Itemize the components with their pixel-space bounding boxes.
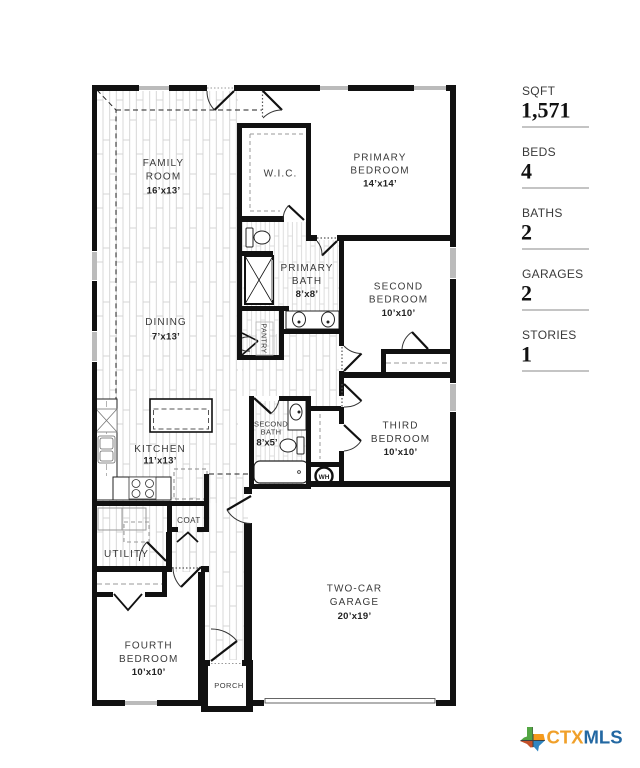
svg-text:WH: WH xyxy=(319,474,330,481)
svg-text:BATH: BATH xyxy=(292,276,322,287)
svg-text:10’x10’: 10’x10’ xyxy=(382,308,416,319)
svg-text:UTILITY: UTILITY xyxy=(104,549,149,560)
svg-text:2: 2 xyxy=(521,220,532,245)
svg-text:TWO-CAR: TWO-CAR xyxy=(327,584,382,595)
svg-text:SECOND: SECOND xyxy=(374,282,423,293)
svg-text:COAT: COAT xyxy=(177,516,201,525)
svg-text:8’x8’: 8’x8’ xyxy=(296,289,319,300)
svg-text:7’x13’: 7’x13’ xyxy=(152,332,180,343)
svg-text:BATH: BATH xyxy=(261,428,282,437)
svg-text:8’x5’: 8’x5’ xyxy=(256,438,277,449)
svg-text:DINING: DINING xyxy=(145,317,187,328)
svg-text:FOURTH: FOURTH xyxy=(125,641,173,652)
svg-text:THIRD: THIRD xyxy=(382,421,418,432)
svg-text:CTXMLS: CTXMLS xyxy=(547,727,623,748)
svg-text:BEDS: BEDS xyxy=(522,145,556,159)
svg-text:BEDROOM: BEDROOM xyxy=(371,434,430,445)
svg-text:20’x19’: 20’x19’ xyxy=(338,611,372,622)
svg-text:PANTRY: PANTRY xyxy=(260,323,267,353)
svg-text:1,571: 1,571 xyxy=(521,98,571,123)
svg-text:11’x13’: 11’x13’ xyxy=(143,456,176,467)
svg-text:W.I.C.: W.I.C. xyxy=(264,169,298,180)
svg-text:4: 4 xyxy=(521,159,532,184)
svg-text:BEDROOM: BEDROOM xyxy=(119,654,178,665)
svg-text:2: 2 xyxy=(521,281,532,306)
svg-text:PRIMARY: PRIMARY xyxy=(280,263,333,274)
svg-text:PRIMARY: PRIMARY xyxy=(353,153,406,164)
svg-text:FAMILY: FAMILY xyxy=(143,158,184,169)
svg-text:GARAGE: GARAGE xyxy=(330,597,379,608)
svg-text:BEDROOM: BEDROOM xyxy=(369,295,428,306)
svg-text:14’x14’: 14’x14’ xyxy=(363,179,397,190)
svg-text:BEDROOM: BEDROOM xyxy=(350,166,409,177)
svg-text:STORIES: STORIES xyxy=(522,328,577,342)
svg-text:16’x13’: 16’x13’ xyxy=(147,185,181,196)
svg-text:SQFT: SQFT xyxy=(522,84,556,98)
svg-text:KITCHEN: KITCHEN xyxy=(134,444,186,455)
svg-text:10’x10’: 10’x10’ xyxy=(384,447,418,458)
svg-text:PORCH: PORCH xyxy=(214,681,244,690)
svg-text:10’x10’: 10’x10’ xyxy=(132,667,166,678)
svg-text:GARAGES: GARAGES xyxy=(522,267,583,281)
svg-text:1: 1 xyxy=(521,342,532,367)
svg-text:BATHS: BATHS xyxy=(522,206,563,220)
svg-text:ROOM: ROOM xyxy=(146,172,182,183)
